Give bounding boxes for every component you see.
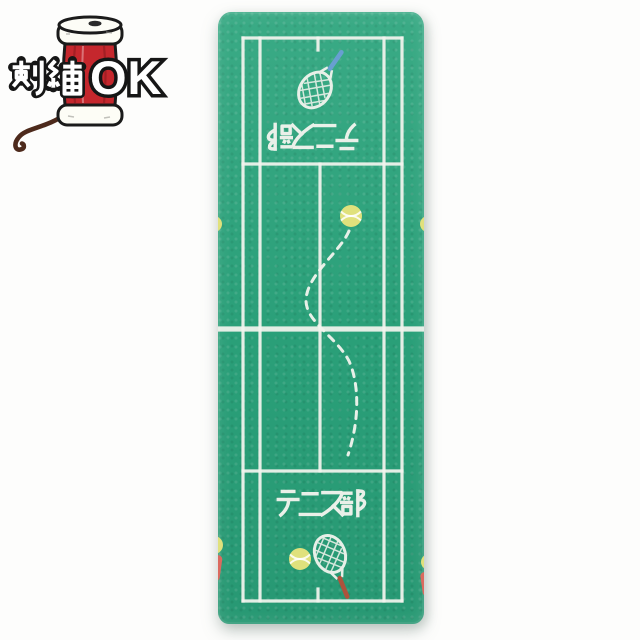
badge-graphic: OK bbox=[6, 10, 178, 162]
edge-ball-bottom-right-icon bbox=[421, 554, 424, 570]
tennis-court-lines bbox=[218, 38, 424, 601]
club-text-top bbox=[268, 123, 358, 151]
club-text-bottom bbox=[277, 489, 365, 517]
badge-ok-text: OK bbox=[90, 51, 163, 104]
edge-ball-left-icon bbox=[218, 216, 222, 232]
tennis-ball-icon bbox=[340, 205, 362, 227]
towel-design bbox=[218, 12, 424, 624]
edge-ball-bottom-left-icon bbox=[218, 536, 223, 554]
edge-racket-handle-left-icon bbox=[218, 555, 223, 582]
embroidery-ok-badge: OK bbox=[6, 10, 178, 162]
edge-racket-handle-right-icon bbox=[420, 571, 424, 596]
tennis-ball-bottom-icon bbox=[289, 548, 311, 570]
tennis-racket-top-icon bbox=[292, 44, 354, 114]
ball-trajectory-dashed-path bbox=[306, 231, 357, 455]
tennis-towel bbox=[218, 12, 424, 624]
edge-ball-right-icon bbox=[420, 216, 424, 232]
product-photo: OK bbox=[0, 0, 640, 640]
badge-kanji-text bbox=[13, 61, 82, 94]
